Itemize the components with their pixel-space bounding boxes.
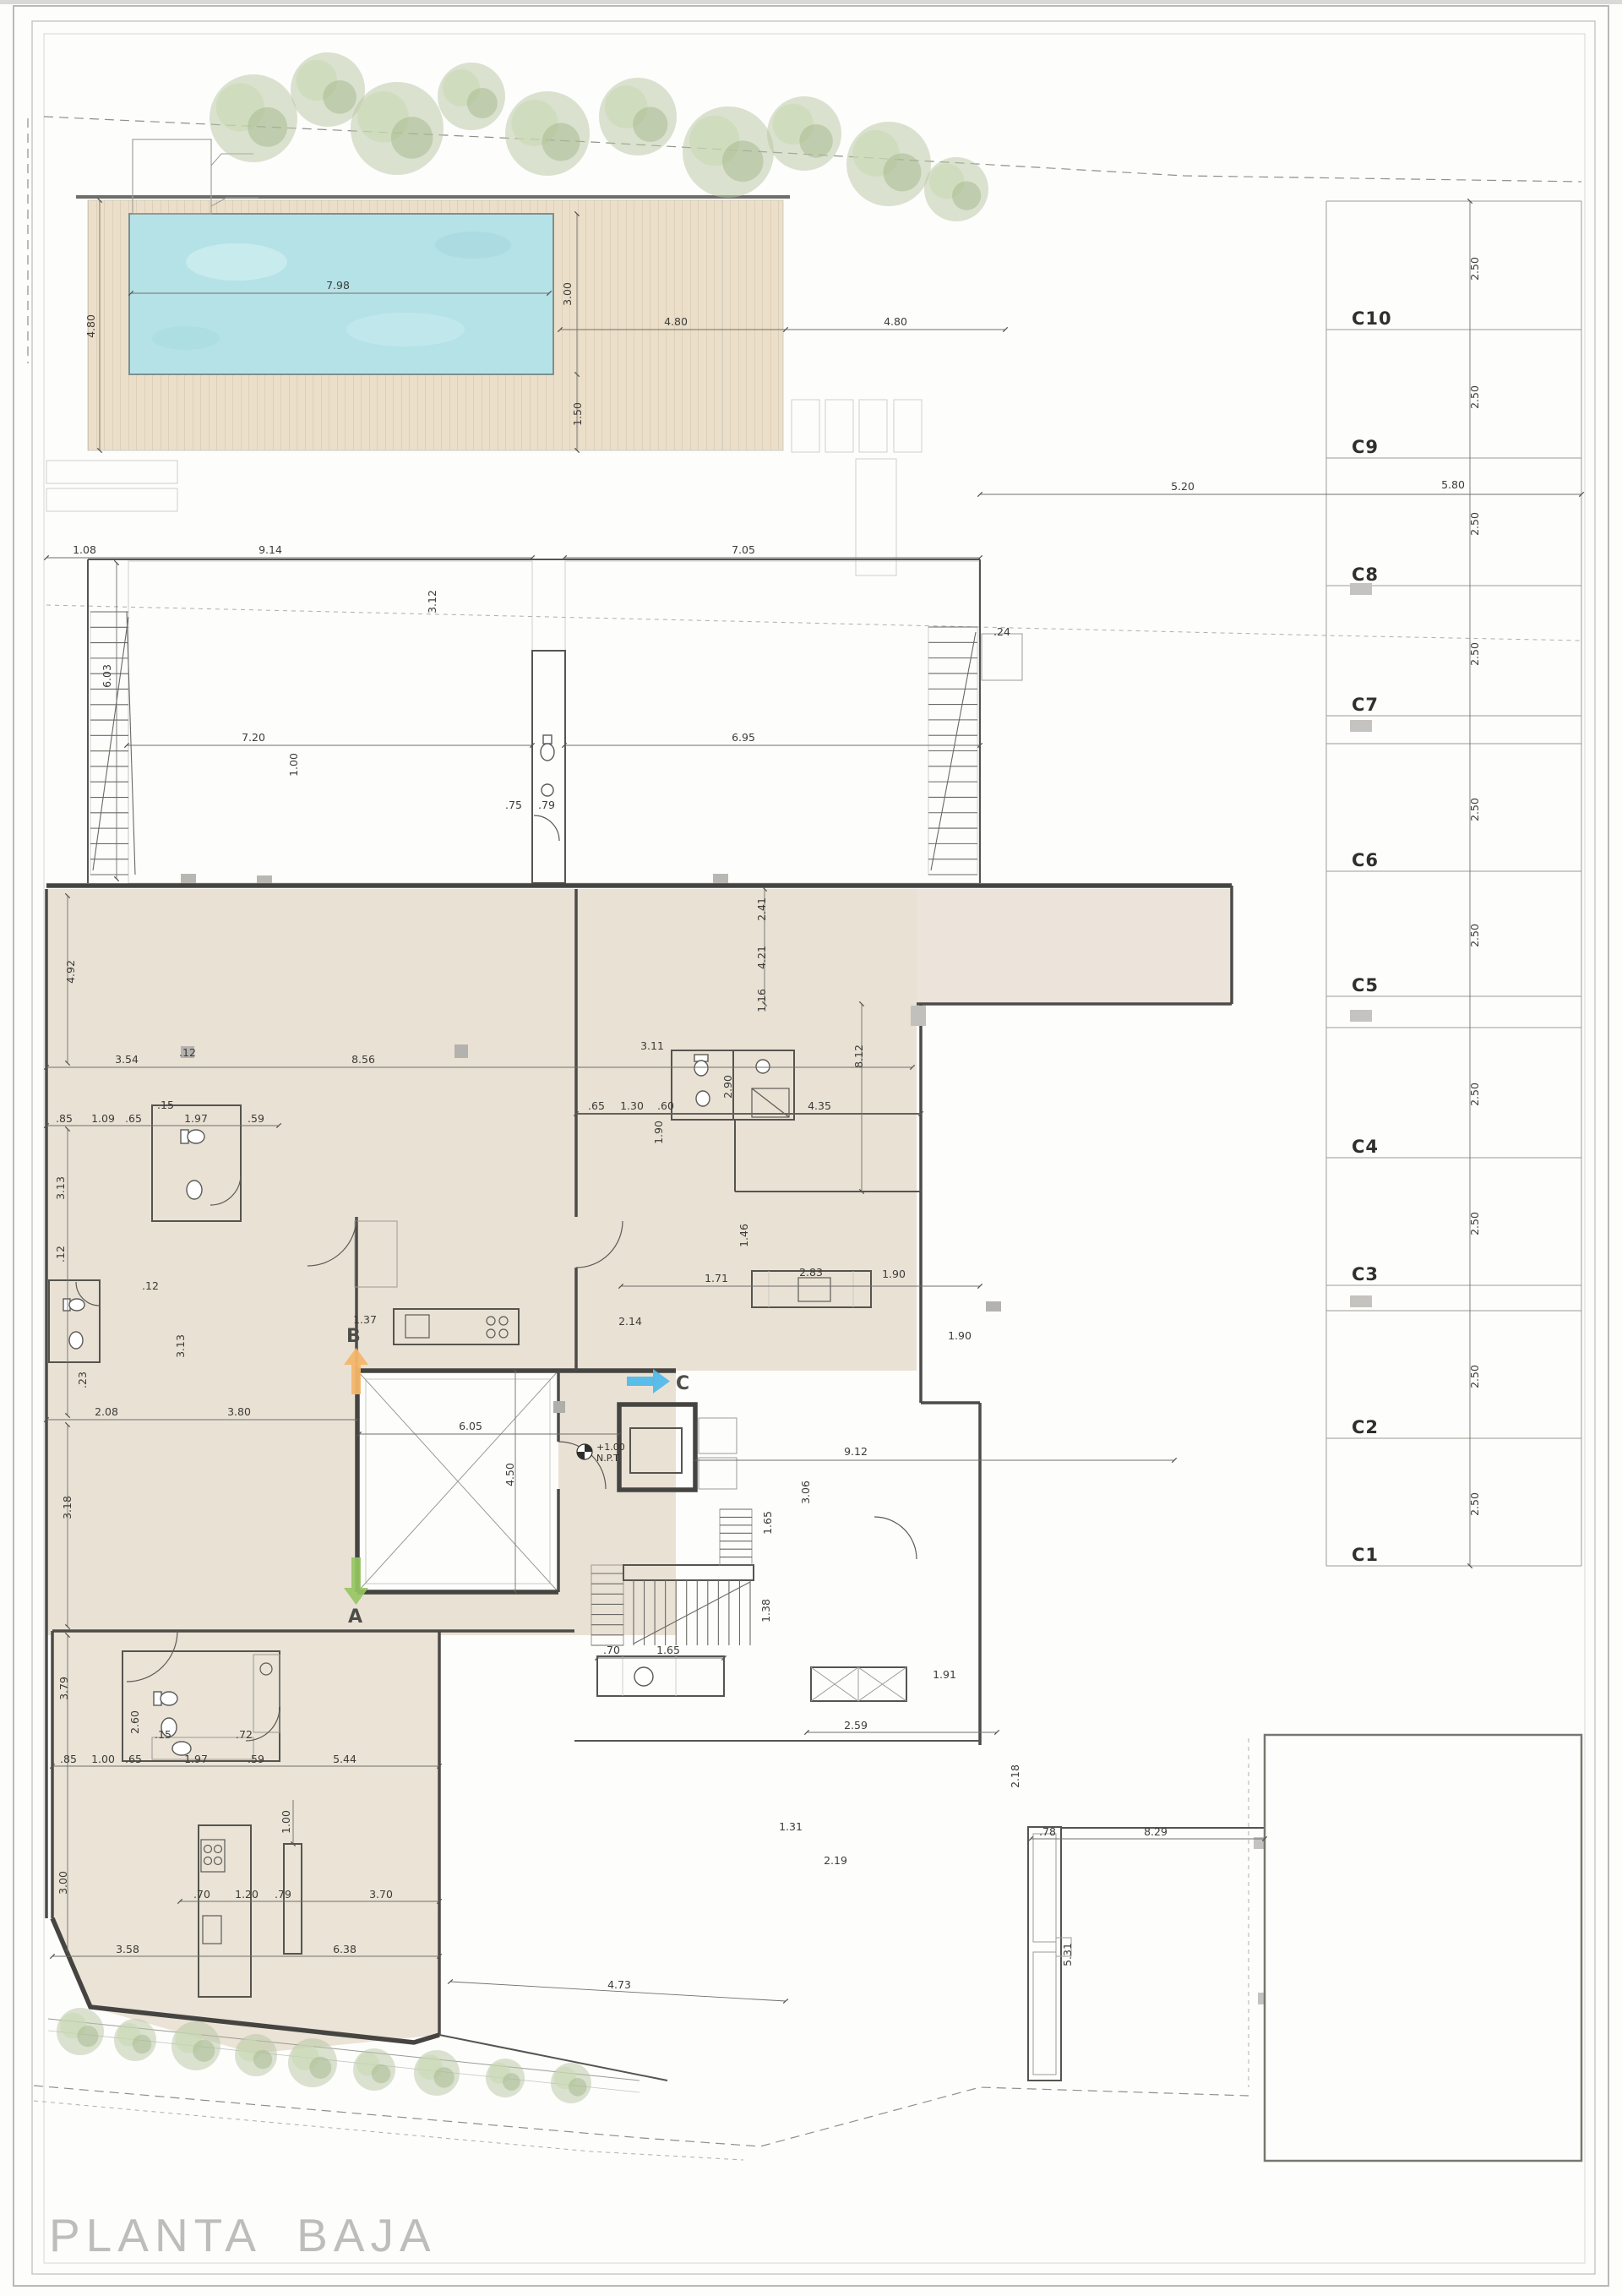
- terrace-left: [128, 561, 532, 883]
- dim-label: 1.65: [656, 1644, 680, 1656]
- dim-label: .70: [193, 1888, 210, 1901]
- parking-space-label: C5: [1352, 975, 1379, 995]
- dim-label: 1.90: [948, 1329, 972, 1342]
- dim-label: 4.92: [64, 960, 77, 984]
- pillar: [1350, 583, 1372, 595]
- dim-label: 2.08: [95, 1405, 118, 1418]
- dim-label: 3.00: [57, 1871, 69, 1895]
- parking-space-label: C8: [1352, 564, 1379, 585]
- dim-label: 3.58: [116, 1943, 139, 1955]
- dim-label: 1.37: [353, 1313, 377, 1326]
- dim-label: .78: [1039, 1825, 1056, 1838]
- dim-label: .85: [56, 1112, 73, 1125]
- parking-space-label: C2: [1352, 1417, 1379, 1437]
- court-bottom-right: [1265, 1735, 1581, 2161]
- pillar: [1350, 1295, 1372, 1307]
- dim-label: 3.00: [561, 282, 574, 306]
- dim-label: 2.41: [755, 897, 768, 921]
- parking-bay-dim: 2.50: [1468, 1083, 1481, 1106]
- dim-label: 1.31: [779, 1820, 803, 1833]
- stair-terrace-right: [928, 627, 977, 875]
- parking-bay-dim: 2.50: [1468, 1212, 1481, 1235]
- dim-label: 7.20: [242, 731, 265, 744]
- page-title: PLANTA BAJA: [49, 2209, 437, 2261]
- dim-label: 1.20: [235, 1888, 259, 1901]
- pillar: [1350, 720, 1372, 732]
- dim-label: 9.12: [844, 1445, 868, 1458]
- dim-label: 7.98: [326, 279, 350, 292]
- parking-bay-dim: 2.50: [1468, 257, 1481, 281]
- dim-label: 1.90: [882, 1268, 906, 1280]
- dim-label: .65: [588, 1099, 605, 1112]
- arrow-b-label: B: [346, 1326, 361, 1347]
- dim-label: 8.29: [1144, 1825, 1168, 1838]
- dim-label: 5.20: [1171, 480, 1195, 493]
- parking-space-label: C1: [1352, 1545, 1379, 1565]
- dim-label: .59: [248, 1112, 264, 1125]
- terraces: [88, 559, 1022, 887]
- dim-label: .60: [657, 1099, 674, 1112]
- dim-label: 4.73: [607, 1978, 631, 1991]
- dim-label: 4.80: [84, 314, 97, 338]
- dim-label: .70: [603, 1644, 620, 1656]
- terrace-core: [532, 651, 565, 883]
- dim-label: .15: [155, 1728, 171, 1741]
- parking-space-label: C7: [1352, 695, 1379, 715]
- floor-plan-svg: C10C9C8C7C6C5C4C3C2C1 2.502.502.502.502.…: [0, 0, 1622, 2296]
- main-units: [46, 886, 1581, 2161]
- dim-label: 2.59: [844, 1719, 868, 1732]
- dim-label: 1.50: [571, 402, 584, 426]
- dim-label: 2.18: [1009, 1764, 1021, 1788]
- dim-label: 2.60: [128, 1710, 141, 1734]
- parking-bay-dim: 2.50: [1468, 798, 1481, 821]
- dim-label: 3.11: [640, 1039, 664, 1052]
- dim-label: .79: [275, 1888, 291, 1901]
- kitchen-hall-counter: [597, 1656, 724, 1696]
- dim-label: 1.00: [91, 1753, 115, 1765]
- dim-label: .59: [248, 1753, 264, 1765]
- parking-bay-dim: 2.50: [1468, 512, 1481, 536]
- dim-label: 5.31: [1061, 1943, 1074, 1966]
- pillar: [1350, 1010, 1372, 1022]
- dim-label: 1.46: [738, 1224, 750, 1247]
- parking-bay-dim: 2.50: [1468, 924, 1481, 947]
- dim-label: .75: [505, 799, 522, 811]
- dim-label: 1.97: [184, 1753, 208, 1765]
- dim-label: 2.83: [799, 1266, 823, 1279]
- ramp-skylight: [811, 1667, 906, 1701]
- dim-label: 5.80: [1441, 478, 1465, 491]
- dim-label: 6.38: [333, 1943, 357, 1955]
- dim-label: 1.38: [759, 1599, 772, 1622]
- dim-label: 1.09: [91, 1112, 115, 1125]
- unit-bottom-left: [52, 1631, 439, 2053]
- dim-label: 1.16: [755, 989, 768, 1012]
- parking-space-label: C3: [1352, 1264, 1379, 1284]
- dim-label: 4.35: [808, 1099, 831, 1112]
- dim-label: .65: [125, 1112, 142, 1125]
- dim-label: 3.13: [54, 1176, 67, 1200]
- parking-bay-dim: 2.50: [1468, 1492, 1481, 1516]
- dim-label: 3.70: [369, 1888, 393, 1901]
- dim-label: 6.03: [101, 664, 113, 688]
- dim-label: .23: [76, 1372, 89, 1388]
- dim-label: 3.13: [174, 1334, 187, 1358]
- dim-label: .12: [142, 1279, 159, 1292]
- dim-label: .12: [179, 1046, 196, 1059]
- dim-label: .15: [157, 1099, 174, 1111]
- dim-label: 8.12: [852, 1044, 865, 1068]
- dim-label: 1.97: [184, 1112, 208, 1125]
- dim-label: 4.50: [503, 1463, 516, 1486]
- arrow-c-label: C: [676, 1373, 689, 1394]
- parking-bay-dim: 2.50: [1468, 385, 1481, 409]
- dim-label: 1.08: [73, 543, 96, 556]
- dim-label: .12: [54, 1246, 67, 1263]
- dim-label: 1.91: [933, 1668, 956, 1681]
- dim-label: 3.79: [57, 1677, 70, 1700]
- dim-label: .24: [993, 625, 1010, 638]
- drawing-sheet: C10C9C8C7C6C5C4C3C2C1 2.502.502.502.502.…: [0, 0, 1622, 2296]
- dim-label: 4.80: [664, 315, 688, 328]
- level-datum: N.P.T: [596, 1453, 619, 1464]
- deck-strips: [792, 400, 922, 575]
- dim-label: 1.00: [280, 1810, 292, 1834]
- terrace-right: [565, 561, 979, 883]
- dim-label: 3.06: [799, 1481, 812, 1504]
- dim-label: 4.80: [884, 315, 907, 328]
- dim-label: .79: [538, 799, 555, 811]
- dim-label: 7.05: [732, 543, 755, 556]
- parking-space-label: C10: [1352, 308, 1392, 329]
- pool-deck-area: [46, 52, 988, 575]
- dim-label: .85: [60, 1753, 77, 1765]
- dim-label: 2.90: [721, 1075, 734, 1099]
- parking-space-label: C9: [1352, 437, 1379, 457]
- stair-terrace-left: [90, 612, 135, 875]
- dim-label: 9.14: [259, 543, 282, 556]
- dim-label: 1.65: [761, 1511, 774, 1535]
- dim-label: 5.44: [333, 1753, 357, 1765]
- dim-label: 2.19: [824, 1854, 847, 1867]
- dim-label: 1.30: [620, 1099, 644, 1112]
- level-value: +1.00: [596, 1442, 625, 1453]
- dim-label: .72: [236, 1728, 253, 1741]
- parking-space-label: C4: [1352, 1137, 1379, 1157]
- parking-bay-dim: 2.50: [1468, 1365, 1481, 1388]
- dim-label: 6.05: [459, 1420, 482, 1432]
- dim-label: 3.18: [61, 1496, 73, 1519]
- parking-bay-dim: 2.50: [1468, 642, 1481, 666]
- dim-label: 3.12: [426, 590, 438, 614]
- dim-label: 6.95: [732, 731, 755, 744]
- dim-label: 3.80: [227, 1405, 251, 1418]
- dim-label: 1.90: [652, 1121, 665, 1144]
- dim-label: 8.56: [351, 1053, 375, 1066]
- parking-space-label: C6: [1352, 850, 1379, 870]
- dim-label: 3.54: [115, 1053, 139, 1066]
- dim-label: .65: [125, 1753, 142, 1765]
- dim-label: 2.14: [618, 1315, 642, 1328]
- dim-label: 1.00: [287, 753, 300, 777]
- arrow-a-label: A: [348, 1606, 362, 1628]
- dim-label: 1.71: [705, 1272, 728, 1284]
- dim-label: 4.21: [755, 946, 768, 969]
- unit-right-wing: [917, 889, 1232, 1004]
